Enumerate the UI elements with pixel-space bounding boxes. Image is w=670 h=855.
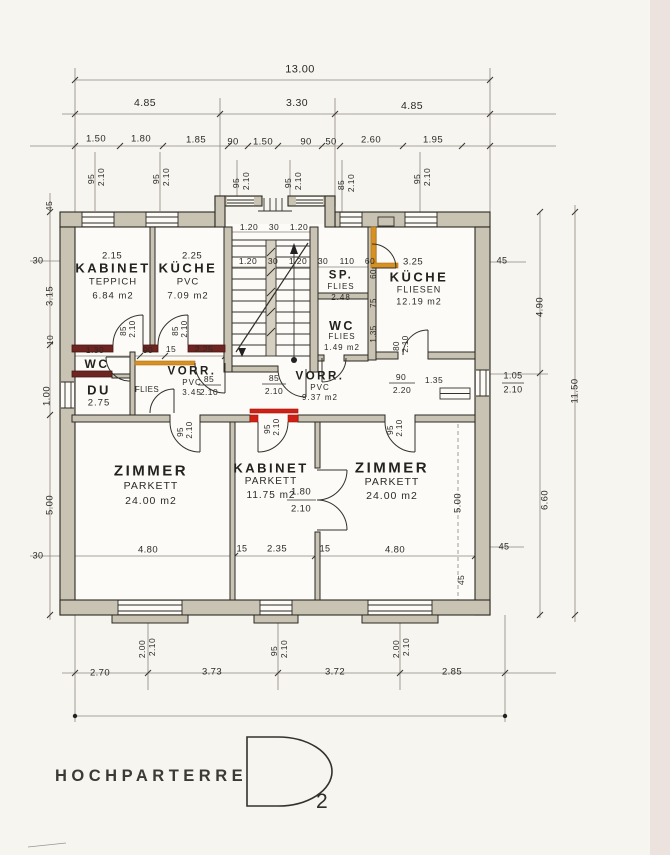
dim-label: 2.70 (90, 668, 110, 678)
dim-label: 110 (340, 257, 355, 266)
room-area-label: 24.00 m2 (125, 496, 177, 507)
dim-label: 95 (270, 646, 279, 656)
room-floor-label: PARKETT (124, 481, 179, 492)
room-area-label: 9.37 m2 (302, 394, 338, 402)
dim-label: 80 (393, 341, 401, 351)
dim-label: 85 (337, 180, 346, 190)
dim-label: 95 (177, 427, 185, 437)
room-floor-label: FLIES (327, 283, 354, 291)
dim-label: 2.10 (162, 168, 171, 186)
dim-label: 85 (269, 374, 279, 383)
dim-label: 45 (497, 257, 508, 266)
dim-label: 3.15 (45, 286, 55, 306)
dim-label: 30 (268, 257, 278, 266)
dim-label: 95 (87, 174, 96, 184)
dim-label: 1.95 (423, 135, 443, 145)
dim-label: 2.10 (97, 168, 106, 186)
dim-label: 13.00 (285, 65, 315, 76)
dim-label: 2.10 (402, 335, 410, 352)
dim-label: 15 (237, 545, 248, 554)
room-name-label: ZIMMER (114, 464, 188, 479)
dim-label: 95 (413, 174, 422, 184)
room-name-label: KÜCHE (390, 271, 449, 284)
annotation-layer: 13.004.853.304.851.501.801.85901.5090502… (0, 0, 670, 855)
dim-label: 1.50 (86, 134, 106, 144)
dim-label: 15 (320, 545, 331, 554)
dim-label: 85 (120, 326, 128, 336)
dim-label: 45 (457, 575, 466, 585)
dim-label: 2.10 (402, 638, 411, 656)
dim-label: 30 (33, 257, 44, 266)
room-area-label: 1.49 m2 (324, 344, 360, 352)
dim-label: 1.30 (86, 346, 104, 355)
dim-label: 2.10 (291, 504, 311, 514)
dim-label: 2.60 (361, 135, 381, 145)
dim-label: 2.25 (195, 345, 213, 354)
room-area-label: 24.00 m2 (366, 491, 418, 502)
dim-label: 45 (499, 543, 510, 552)
dim-label: 30 (318, 257, 328, 266)
dim-label: 2.10 (423, 168, 432, 186)
room-area-label: 2.48 (331, 294, 351, 302)
room-name-label: KÜCHE (159, 262, 218, 275)
room-name-label: KABINET (75, 262, 150, 275)
dim-label: 1.20 (289, 257, 307, 266)
room-area-label: 11.75 m2 (247, 491, 296, 501)
dim-label: 1.85 (186, 135, 206, 145)
dim-label: 95 (264, 424, 272, 434)
room-floor-label: PVC (310, 384, 329, 392)
dim-label: 2.20 (393, 386, 411, 395)
room-name-label: DU (87, 384, 111, 397)
dim-label: 1.20 (239, 257, 257, 266)
dim-label: 90 (300, 137, 311, 147)
dim-label: 2.25 (182, 251, 202, 261)
dim-label: 4.85 (401, 101, 423, 112)
dim-label: 2.10 (129, 320, 137, 337)
dim-label: 1.05 (503, 372, 522, 381)
dim-label: 60 (370, 269, 378, 279)
dim-label: 60 (365, 257, 375, 266)
variant-number: 2 (316, 790, 328, 814)
dim-label: 2.85 (442, 667, 462, 677)
dim-label: 2.15 (102, 251, 122, 261)
room-name-label: ZIMMER (355, 461, 429, 476)
dim-label: 2.10 (200, 388, 218, 397)
room-name-label: VORR. (168, 366, 217, 378)
dim-label: 95 (284, 178, 293, 188)
dim-label: 95 (387, 425, 395, 435)
room-name-label: VORR. (296, 371, 345, 383)
dim-label: 2.00 (138, 640, 147, 658)
dim-label: 2.10 (186, 421, 194, 438)
dim-label: 90 (143, 346, 153, 355)
dim-label: 30 (269, 223, 279, 232)
floorplan-page: 13.004.853.304.851.501.801.85901.5090502… (0, 0, 670, 855)
dim-label: 2.10 (347, 174, 356, 192)
dim-label: 11.50 (570, 378, 580, 403)
dim-label: 95 (232, 178, 241, 188)
dim-label: 2.10 (242, 172, 251, 190)
room-area-label: 6.84 m2 (92, 291, 133, 301)
dim-label: 2.10 (181, 320, 189, 337)
room-area-label: 2.75 (88, 398, 111, 408)
dim-label: 1.50 (253, 137, 273, 147)
dim-label: 2.10 (396, 419, 404, 436)
room-floor-label: PVC (177, 277, 200, 287)
dim-label: 2.10 (294, 172, 303, 190)
dim-label: 3.25 (403, 257, 423, 267)
room-floor-label: PARKETT (245, 477, 297, 487)
room-floor-label: FLIESEN (397, 285, 442, 294)
dim-label: 4.80 (138, 545, 158, 555)
dim-label: 4.90 (535, 297, 545, 317)
dim-label: 10 (46, 335, 55, 345)
dim-label: 90 (396, 373, 406, 382)
dim-label: 95 (152, 174, 161, 184)
dim-label: 1.80 (131, 134, 151, 144)
room-name-label: WC (329, 320, 355, 333)
dim-label: FLIES (135, 386, 159, 394)
room-floor-label: FLIES (328, 333, 355, 341)
plan-level-title: HOCHPARTERRE (55, 767, 247, 786)
dim-label: 4.80 (385, 545, 405, 555)
dim-label: 2.10 (503, 386, 522, 395)
dim-label: 1.35 (425, 376, 443, 385)
room-floor-label: TEPPICH (89, 277, 137, 287)
dim-label: 2.10 (273, 418, 281, 435)
dim-label: 2.00 (392, 640, 401, 658)
dim-label: 2.35 (267, 544, 287, 554)
dim-label: 1.20 (290, 223, 308, 232)
room-floor-label: PVC (182, 379, 201, 387)
dim-label: 1.00 (42, 386, 52, 406)
dim-label: 1.35 (370, 325, 378, 342)
room-floor-label: PARKETT (365, 477, 420, 488)
dim-label: 2.10 (280, 640, 289, 658)
dim-label: 5.00 (45, 495, 55, 515)
room-area-label: 12.19 m2 (396, 298, 442, 307)
dim-label: 2.10 (265, 387, 283, 396)
dim-label: 30 (33, 552, 44, 561)
dim-label: 50 (325, 137, 336, 147)
dim-label: 6.60 (540, 490, 550, 510)
room-name-label: KABINET (233, 462, 308, 475)
room-name-label: WC (85, 358, 110, 370)
room-area-label: 3.45 (182, 389, 202, 397)
dim-label: 4.85 (134, 98, 156, 109)
dim-label: 5.00 (453, 493, 463, 513)
dim-label: 1.20 (240, 223, 258, 232)
dim-label: 15 (166, 345, 176, 354)
dim-label: 3.30 (286, 98, 308, 109)
dim-label: 85 (172, 326, 180, 336)
dim-label: 90 (227, 137, 238, 147)
dim-label: 75 (370, 298, 378, 308)
dim-label: 45 (45, 201, 54, 211)
room-area-label: 7.09 m2 (167, 291, 208, 301)
dim-label: 3.72 (325, 667, 345, 677)
dim-label: 2.10 (148, 638, 157, 656)
dim-label: 3.73 (202, 667, 222, 677)
room-name-label: SP. (329, 270, 354, 282)
